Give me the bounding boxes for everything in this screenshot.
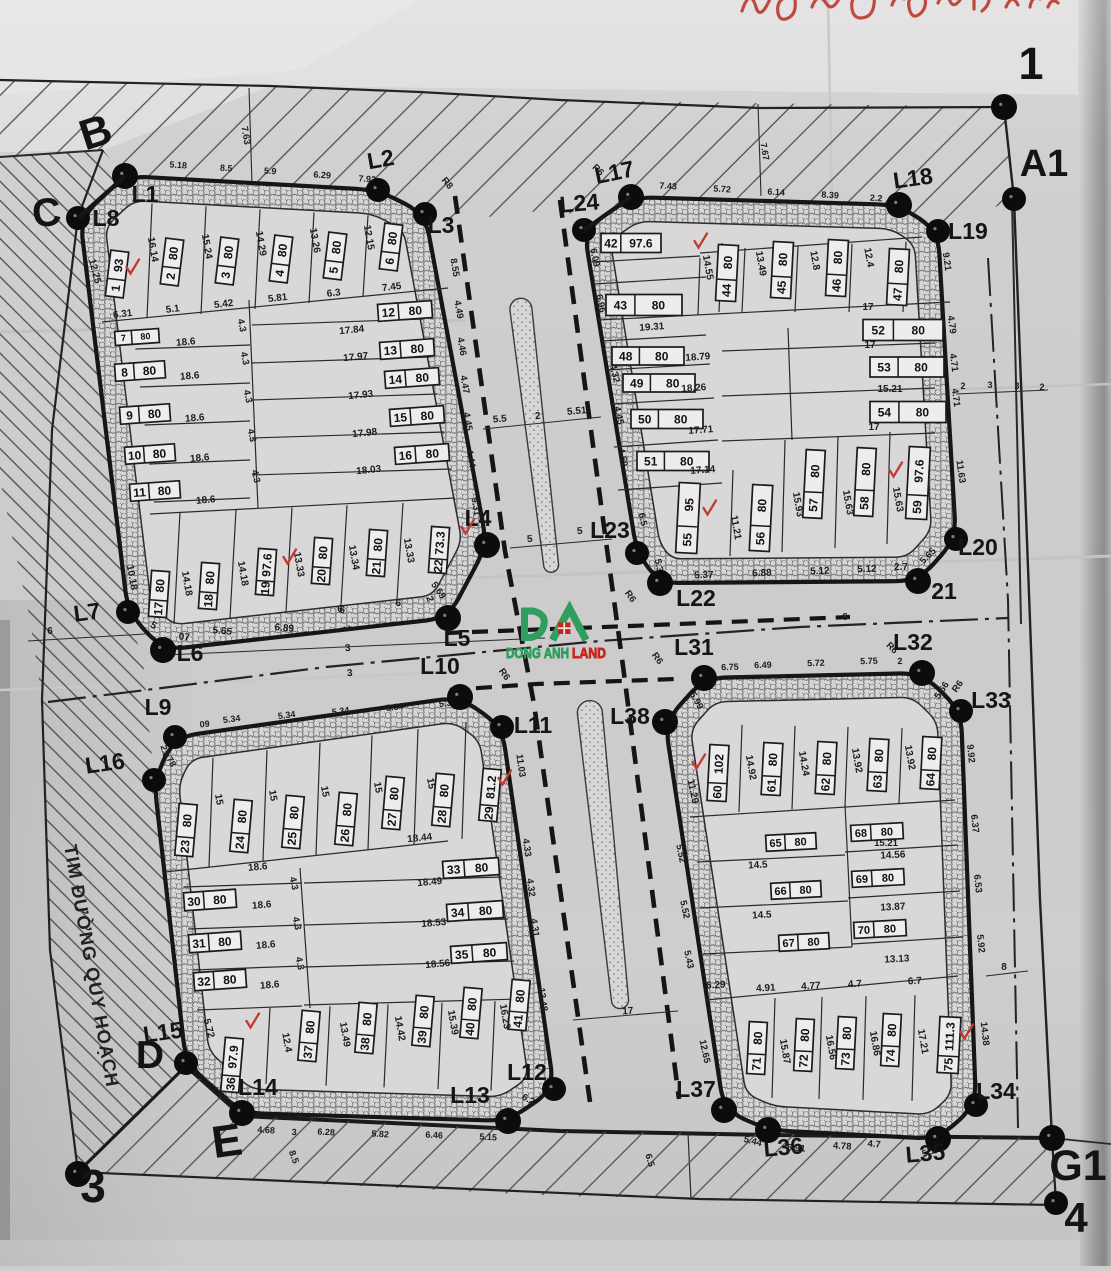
svg-text:18.79: 18.79 [685, 351, 711, 364]
svg-text:51: 51 [644, 455, 658, 469]
svg-text:18.6: 18.6 [185, 412, 206, 425]
svg-text:80: 80 [916, 406, 930, 420]
svg-text:80: 80 [275, 243, 291, 258]
svg-text:18.6: 18.6 [260, 979, 281, 992]
svg-text:67: 67 [782, 937, 795, 950]
svg-text:7: 7 [121, 333, 127, 343]
svg-text:29: 29 [481, 806, 496, 821]
svg-text:L1: L1 [132, 181, 159, 207]
svg-text:80: 80 [221, 245, 237, 260]
svg-text:80: 80 [417, 1005, 432, 1020]
svg-text:71: 71 [749, 1057, 764, 1071]
svg-text:80: 80 [408, 303, 423, 318]
svg-text:80: 80 [751, 1031, 766, 1045]
svg-text:80: 80 [437, 783, 452, 798]
svg-text:80: 80 [799, 884, 812, 897]
svg-text:A1: A1 [1020, 143, 1069, 185]
svg-text:38: 38 [358, 1036, 373, 1051]
svg-text:6.14: 6.14 [767, 187, 785, 198]
svg-text:12: 12 [381, 305, 396, 320]
svg-text:21: 21 [931, 578, 957, 604]
svg-text:80: 80 [820, 751, 835, 765]
svg-text:18.6: 18.6 [190, 452, 211, 465]
svg-text:80: 80 [794, 836, 807, 849]
svg-text:80: 80 [798, 1028, 813, 1042]
svg-text:5.1: 5.1 [165, 303, 181, 316]
svg-text:80: 80 [925, 746, 940, 760]
svg-text:19.31: 19.31 [639, 321, 665, 334]
svg-text:6: 6 [842, 612, 848, 623]
svg-text:80: 80 [415, 370, 430, 385]
svg-text:69: 69 [856, 874, 869, 887]
svg-text:80: 80 [213, 892, 228, 907]
svg-text:74: 74 [883, 1049, 898, 1063]
svg-text:80: 80 [655, 350, 669, 364]
svg-text:19: 19 [258, 581, 273, 596]
svg-text:80: 80 [223, 972, 238, 987]
svg-text:6: 6 [337, 604, 343, 615]
svg-text:80: 80 [140, 331, 151, 342]
svg-text:14.56: 14.56 [880, 849, 906, 861]
svg-text:57: 57 [806, 498, 821, 512]
svg-text:L15: L15 [141, 1016, 184, 1047]
svg-text:L16: L16 [83, 747, 126, 778]
svg-text:6.88: 6.88 [752, 568, 772, 580]
svg-text:5.72: 5.72 [807, 658, 825, 669]
svg-text:68: 68 [855, 828, 868, 841]
svg-text:14: 14 [388, 372, 403, 387]
svg-text:49: 49 [630, 377, 644, 391]
svg-text:18.6: 18.6 [180, 370, 201, 383]
svg-text:15.21: 15.21 [874, 838, 898, 849]
svg-text:21: 21 [369, 560, 384, 575]
svg-text:80: 80 [142, 363, 157, 378]
svg-text:102: 102 [711, 753, 726, 774]
svg-text:80: 80 [420, 408, 435, 423]
svg-text:5.92: 5.92 [974, 934, 987, 954]
svg-text:80: 80 [914, 361, 928, 375]
svg-text:80: 80 [912, 324, 926, 338]
svg-text:31: 31 [192, 936, 207, 951]
svg-text:80: 80 [360, 1012, 375, 1027]
svg-text:17.71: 17.71 [688, 424, 714, 437]
svg-text:18.6: 18.6 [196, 494, 217, 507]
svg-text:L34: L34 [976, 1078, 1016, 1104]
svg-text:9.92: 9.92 [964, 744, 977, 764]
svg-text:4.91: 4.91 [756, 982, 776, 994]
svg-text:64: 64 [923, 772, 938, 786]
svg-text:L19: L19 [948, 218, 988, 244]
svg-text:80: 80 [776, 252, 791, 266]
svg-text:L23: L23 [590, 517, 630, 543]
svg-text:80: 80 [465, 997, 480, 1012]
svg-text:43: 43 [614, 299, 628, 313]
svg-text:23: 23 [177, 839, 192, 854]
svg-text:80: 80 [881, 826, 894, 839]
svg-text:80: 80 [807, 936, 820, 949]
svg-text:6.89: 6.89 [274, 622, 295, 635]
svg-text:18.6: 18.6 [252, 899, 273, 912]
svg-text:66: 66 [774, 885, 787, 898]
svg-text:39: 39 [415, 1029, 430, 1044]
svg-text:1: 1 [1018, 38, 1043, 89]
svg-text:32: 32 [197, 974, 212, 989]
svg-text:63: 63 [870, 774, 885, 788]
svg-text:59: 59 [910, 500, 925, 514]
svg-text:3: 3 [987, 380, 992, 390]
svg-text:80: 80 [840, 1026, 855, 1040]
svg-text:5.65: 5.65 [212, 625, 233, 638]
svg-text:50: 50 [638, 413, 652, 427]
svg-text:17.14: 17.14 [690, 464, 716, 477]
svg-text:25: 25 [284, 831, 299, 846]
svg-text:09: 09 [199, 718, 210, 729]
svg-text:80: 80 [152, 446, 167, 461]
svg-text:30: 30 [187, 894, 202, 909]
svg-text:4.78: 4.78 [833, 1140, 852, 1152]
svg-text:27: 27 [384, 812, 399, 827]
svg-text:13: 13 [383, 343, 398, 358]
svg-text:80: 80 [166, 246, 182, 261]
svg-text:6.53: 6.53 [971, 874, 984, 894]
svg-text:18.49: 18.49 [417, 876, 443, 889]
svg-text:5.34: 5.34 [331, 705, 350, 717]
svg-text:10: 10 [127, 448, 142, 463]
svg-text:80: 80 [153, 578, 168, 593]
svg-text:45: 45 [774, 280, 789, 294]
svg-text:80: 80 [371, 537, 386, 552]
svg-text:14.5: 14.5 [752, 909, 772, 921]
svg-text:17: 17 [622, 1006, 634, 1018]
svg-text:80: 80 [652, 299, 666, 313]
svg-text:L18: L18 [891, 162, 934, 193]
svg-text:48: 48 [619, 350, 633, 364]
svg-text:L14: L14 [238, 1074, 278, 1100]
svg-text:80: 80 [180, 813, 195, 828]
svg-text:93: 93 [111, 258, 127, 273]
svg-text:8.5: 8.5 [220, 163, 233, 174]
svg-text:18.26: 18.26 [681, 382, 707, 395]
svg-text:80: 80 [513, 989, 528, 1004]
svg-text:4.77: 4.77 [801, 980, 821, 992]
svg-text:6.29: 6.29 [706, 979, 726, 991]
svg-text:56: 56 [753, 531, 768, 545]
svg-text:80: 80 [859, 462, 874, 476]
svg-text:6.3: 6.3 [326, 287, 342, 300]
svg-text:L9: L9 [145, 694, 172, 720]
svg-text:L7: L7 [72, 597, 102, 626]
svg-text:41: 41 [511, 1013, 526, 1028]
svg-text:18.56: 18.56 [425, 958, 451, 971]
svg-text:97.6: 97.6 [259, 553, 275, 578]
svg-text:5.12: 5.12 [857, 564, 877, 576]
svg-text:80: 80 [674, 413, 688, 427]
svg-text:5.9: 5.9 [264, 166, 277, 177]
svg-text:L13: L13 [450, 1082, 490, 1108]
svg-text:80: 80 [478, 903, 493, 918]
svg-text:5.15: 5.15 [479, 1132, 497, 1143]
svg-text:8: 8 [1001, 962, 1007, 973]
svg-text:6.49: 6.49 [754, 660, 772, 671]
svg-text:5.72: 5.72 [713, 184, 731, 195]
svg-text:80: 80 [329, 240, 345, 255]
svg-text:L38: L38 [610, 703, 650, 729]
svg-text:40: 40 [463, 1021, 478, 1036]
svg-text:2: 2 [897, 656, 902, 666]
svg-text:L32: L32 [893, 629, 933, 655]
svg-text:DONG ANH: DONG ANH [506, 645, 569, 662]
svg-text:L37: L37 [676, 1076, 716, 1102]
svg-text:80: 80 [235, 809, 250, 824]
svg-text:2.7: 2.7 [894, 562, 909, 573]
svg-text:17: 17 [868, 422, 880, 433]
svg-text:L24: L24 [558, 188, 600, 217]
svg-text:70: 70 [858, 925, 871, 938]
svg-text:80: 80 [287, 805, 302, 820]
svg-text:80: 80 [482, 945, 497, 960]
svg-text:6.28: 6.28 [317, 1127, 335, 1138]
svg-text:80: 80 [666, 377, 680, 391]
svg-text:18.6: 18.6 [248, 861, 269, 874]
svg-text:L31: L31 [674, 634, 714, 660]
svg-text:5.18: 5.18 [169, 159, 187, 170]
svg-text:53: 53 [877, 361, 891, 375]
svg-text:9: 9 [126, 408, 134, 422]
svg-text:80: 80 [147, 406, 162, 421]
svg-text:LAND: LAND [572, 645, 606, 662]
svg-text:52: 52 [872, 324, 886, 338]
svg-text:80: 80 [755, 498, 770, 512]
svg-text:17: 17 [862, 302, 874, 313]
svg-text:2: 2 [960, 381, 965, 391]
svg-text:73: 73 [838, 1052, 853, 1066]
svg-text:6.7: 6.7 [908, 976, 923, 988]
svg-text:16: 16 [398, 448, 413, 463]
svg-text:13.13: 13.13 [884, 953, 910, 965]
svg-text:44: 44 [719, 283, 734, 297]
svg-text:22: 22 [431, 559, 446, 574]
svg-text:L22: L22 [676, 585, 716, 611]
svg-text:80: 80 [766, 752, 781, 766]
svg-text:6.75: 6.75 [721, 662, 739, 673]
svg-text:5.5: 5.5 [492, 413, 507, 425]
svg-text:80: 80 [882, 872, 895, 885]
svg-text:4: 4 [1064, 1194, 1088, 1241]
svg-text:6.46: 6.46 [425, 1130, 443, 1141]
svg-text:18.6: 18.6 [256, 939, 277, 952]
svg-text:5.37: 5.37 [694, 570, 714, 582]
svg-text:46: 46 [829, 278, 844, 292]
svg-text:60: 60 [710, 785, 725, 799]
svg-text:97.9: 97.9 [225, 1044, 241, 1069]
svg-text:75: 75 [941, 1057, 956, 1071]
svg-text:24: 24 [232, 835, 247, 850]
svg-text:L6: L6 [177, 640, 204, 666]
svg-text:4.68: 4.68 [257, 1125, 275, 1136]
svg-text:5.12: 5.12 [810, 566, 830, 578]
svg-text:36: 36 [223, 1076, 238, 1091]
svg-text:L10: L10 [420, 653, 460, 679]
svg-text:58: 58 [857, 496, 872, 510]
svg-text:5.34: 5.34 [385, 701, 404, 713]
svg-text:4.7: 4.7 [867, 1139, 881, 1151]
svg-text:L20: L20 [958, 534, 998, 560]
svg-text:L12: L12 [507, 1059, 547, 1085]
svg-text:33: 33 [447, 862, 462, 877]
svg-text:55: 55 [680, 532, 695, 546]
svg-text:47: 47 [890, 287, 905, 301]
svg-text:C: C [30, 190, 63, 237]
svg-text:6: 6 [47, 626, 53, 637]
svg-text:5.75: 5.75 [860, 656, 878, 667]
svg-text:3: 3 [291, 1127, 297, 1137]
svg-text:5.34: 5.34 [277, 709, 296, 721]
svg-text:20: 20 [314, 568, 329, 583]
svg-text:80: 80 [425, 446, 440, 461]
svg-text:37: 37 [301, 1044, 316, 1059]
svg-text:61: 61 [764, 778, 779, 792]
svg-text:4.7: 4.7 [848, 979, 863, 991]
svg-text:111.3: 111.3 [942, 1022, 958, 1052]
svg-text:80: 80 [410, 341, 425, 356]
svg-text:80: 80 [303, 1020, 318, 1035]
svg-text:15: 15 [393, 410, 408, 425]
svg-text:72: 72 [796, 1054, 811, 1068]
svg-text:3: 3 [80, 1160, 106, 1212]
svg-text:80: 80 [831, 250, 846, 264]
svg-text:2.2: 2.2 [870, 193, 883, 204]
svg-text:18.53: 18.53 [421, 917, 447, 930]
svg-text:54: 54 [878, 406, 892, 420]
svg-text:80: 80 [721, 255, 736, 269]
svg-text:L35: L35 [904, 1138, 946, 1167]
svg-text:L5: L5 [444, 625, 471, 651]
svg-text:14.5: 14.5 [748, 859, 768, 871]
svg-text:8.39: 8.39 [821, 190, 839, 201]
svg-text:80: 80 [340, 802, 355, 817]
svg-text:97.6: 97.6 [912, 459, 927, 483]
svg-text:6.37: 6.37 [968, 814, 981, 834]
svg-text:80: 80 [474, 860, 489, 875]
svg-text:97.6: 97.6 [629, 237, 653, 251]
svg-text:5.82: 5.82 [371, 1129, 389, 1140]
svg-text:65: 65 [769, 837, 782, 850]
svg-text:80: 80 [316, 545, 331, 560]
svg-text:95: 95 [682, 497, 697, 511]
svg-text:18: 18 [201, 593, 216, 608]
svg-text:80: 80 [872, 748, 887, 762]
svg-text:2: 2 [1039, 382, 1044, 392]
svg-text:80: 80 [203, 570, 218, 585]
svg-text:5.51: 5.51 [567, 405, 588, 418]
svg-text:8: 8 [121, 365, 129, 379]
svg-text:34: 34 [451, 905, 466, 920]
svg-text:L2: L2 [365, 144, 396, 174]
svg-text:80: 80 [387, 786, 402, 801]
svg-text:73.3: 73.3 [432, 531, 448, 556]
svg-text:L3: L3 [428, 212, 455, 238]
svg-text:80: 80 [884, 923, 897, 936]
svg-text:7.43: 7.43 [659, 181, 677, 192]
svg-text:11: 11 [133, 485, 147, 500]
svg-text:80: 80 [218, 934, 233, 949]
svg-text:15.21: 15.21 [877, 384, 902, 395]
svg-text:80: 80 [885, 1023, 900, 1037]
svg-text:42: 42 [604, 237, 618, 251]
svg-text:17: 17 [151, 601, 166, 616]
svg-text:L11: L11 [514, 712, 553, 738]
svg-text:81.2: 81.2 [483, 775, 499, 800]
svg-text:80: 80 [385, 231, 401, 246]
svg-text:28: 28 [434, 809, 449, 824]
svg-text:5.34: 5.34 [222, 713, 241, 725]
svg-text:62: 62 [818, 777, 833, 791]
svg-text:26: 26 [337, 828, 352, 843]
svg-text:3: 3 [1014, 381, 1019, 391]
svg-text:17: 17 [864, 340, 876, 351]
svg-text:80: 80 [808, 464, 823, 478]
svg-text:L8: L8 [93, 205, 120, 231]
svg-text:18.6: 18.6 [176, 336, 197, 349]
svg-text:L33: L33 [971, 687, 1011, 713]
svg-text:80: 80 [892, 259, 907, 273]
svg-text:13.87: 13.87 [880, 901, 906, 913]
svg-text:6.29: 6.29 [313, 169, 331, 180]
svg-text:G1: G1 [1049, 1142, 1106, 1190]
svg-text:80: 80 [157, 483, 172, 498]
svg-text:L36: L36 [762, 1132, 804, 1161]
svg-text:35: 35 [455, 947, 470, 962]
